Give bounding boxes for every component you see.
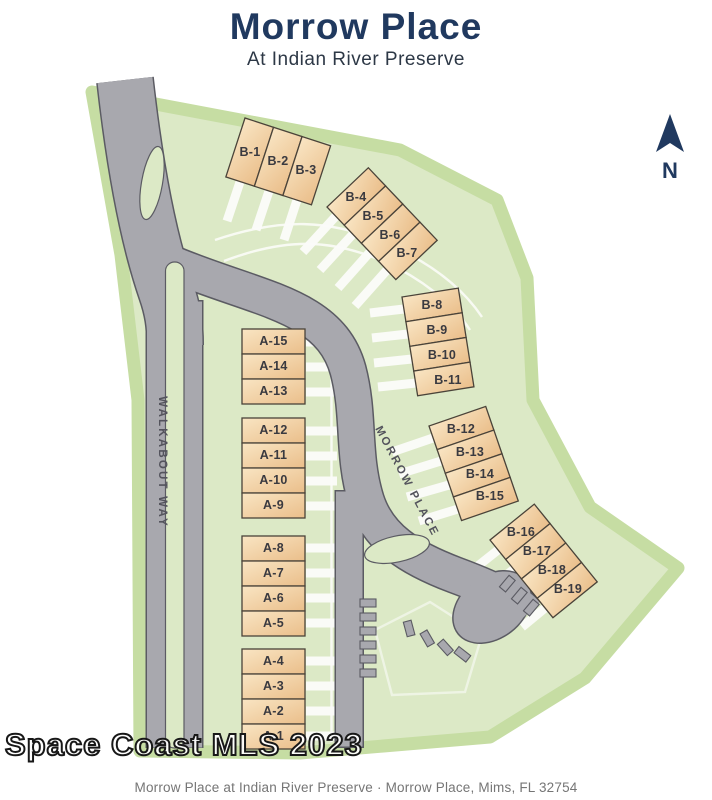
lot-label-a7: A-7	[263, 566, 284, 580]
site-plan-map: WALKABOUT WAY MORROW PLACE	[0, 0, 712, 800]
lot-label-b12: B-12	[447, 422, 475, 436]
lot-label-a8: A-8	[263, 541, 284, 555]
page-subtitle: At Indian River Preserve	[0, 49, 712, 71]
lot-label-b14: B-14	[466, 467, 494, 481]
header: Morrow Place At Indian River Preserve	[0, 6, 712, 71]
lot-label-b2: B-2	[267, 154, 288, 168]
lot-label-b16: B-16	[507, 525, 535, 539]
lot-label-a9: A-9	[263, 498, 284, 512]
page-title: Morrow Place	[0, 6, 712, 48]
footer-caption: Morrow Place at Indian River Preserve · …	[0, 780, 712, 795]
lot-label-a13: A-13	[259, 384, 287, 398]
site-map-page: Morrow Place At Indian River Preserve	[0, 0, 712, 800]
lot-label-a11: A-11	[260, 448, 288, 462]
north-arrow-label: N	[662, 158, 678, 183]
mls-watermark: Space Coast MLS 2023	[5, 727, 363, 763]
lot-label-b1: B-1	[239, 145, 260, 159]
lot-label-a4: A-4	[263, 654, 284, 668]
lot-label-b4: B-4	[345, 190, 366, 204]
lot-label-a15: A-15	[259, 334, 287, 348]
lot-label-b5: B-5	[362, 209, 383, 223]
lot-label-b3: B-3	[295, 163, 316, 177]
north-arrow-icon	[656, 114, 684, 152]
lot-label-b11: B-11	[434, 373, 462, 387]
lot-label-b15: B-15	[476, 489, 504, 503]
lot-label-b6: B-6	[379, 228, 400, 242]
lot-label-b7: B-7	[396, 246, 417, 260]
lot-label-b8: B-8	[421, 298, 442, 312]
lot-label-b18: B-18	[538, 563, 566, 577]
lot-label-b13: B-13	[456, 445, 484, 459]
lot-label-a12: A-12	[259, 423, 287, 437]
lot-label-b17: B-17	[523, 544, 551, 558]
lot-label-a5: A-5	[263, 616, 284, 630]
lot-label-b19: B-19	[554, 582, 582, 596]
lot-label-a6: A-6	[263, 591, 284, 605]
north-arrow: N	[656, 114, 684, 183]
lot-label-a14: A-14	[259, 359, 287, 373]
road-label-walkabout-way: WALKABOUT WAY	[156, 396, 168, 528]
lot-label-a3: A-3	[263, 679, 284, 693]
lot-label-b9: B-9	[426, 323, 447, 337]
lot-label-a2: A-2	[263, 704, 284, 718]
lot-label-b10: B-10	[428, 348, 456, 362]
lot-label-a10: A-10	[259, 473, 287, 487]
